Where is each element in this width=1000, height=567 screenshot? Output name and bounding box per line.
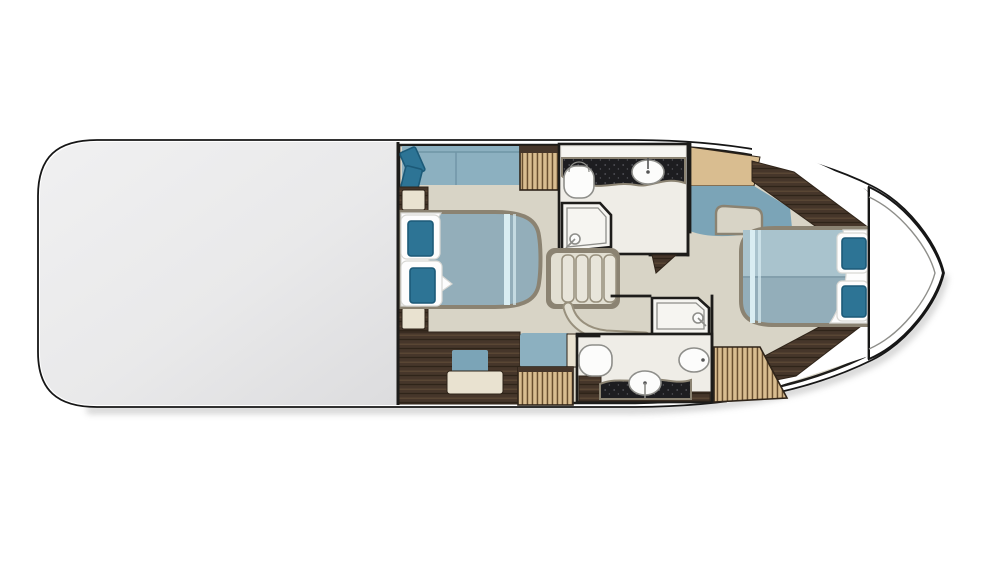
midship-wardrobe-bottom — [518, 367, 573, 405]
vanity-desktop — [447, 371, 503, 394]
stair-step-1 — [562, 255, 574, 302]
forward-bed-pillow-2 — [842, 286, 866, 317]
ensuite-toilet — [579, 345, 612, 376]
day-head-drain — [646, 170, 650, 174]
midship-bench-side — [567, 334, 577, 367]
midship-nightstand-bottom — [399, 305, 428, 334]
midship-bed — [401, 212, 541, 307]
aft-deck-overlay — [40, 142, 398, 405]
bed-foot-stripe-2 — [513, 214, 516, 305]
forward-bed-stripe-1 — [750, 230, 755, 323]
midship-vanity — [399, 332, 520, 404]
floor-plan-canvas — [0, 0, 1000, 567]
day-head-top-band — [562, 147, 685, 158]
bed-pillow-2 — [410, 268, 435, 303]
forward-bed-stripe-2 — [758, 230, 761, 323]
forward-bed — [741, 228, 869, 325]
vanity-stool — [452, 350, 488, 373]
stair-step-3 — [590, 255, 602, 302]
yacht-floor-plan — [0, 0, 1000, 567]
day-head-shower — [562, 203, 611, 252]
aft-deck-silhouette — [40, 142, 398, 405]
wardrobe-top-trim — [520, 146, 563, 153]
bed-foot-stripe-1 — [504, 214, 510, 305]
ensuite-bidet-faucet — [701, 358, 705, 362]
forward-bed-pillow-1 — [842, 238, 866, 269]
midship-wardrobe-top — [520, 146, 563, 190]
bow-deck — [869, 187, 943, 359]
ensuite-shower — [652, 298, 709, 334]
bed-pillow-1 — [408, 221, 433, 256]
midship-bench — [520, 333, 570, 368]
midship-nightstand-top — [399, 187, 428, 213]
bow-deck-surface — [869, 187, 943, 359]
stair-step-2 — [576, 255, 588, 302]
